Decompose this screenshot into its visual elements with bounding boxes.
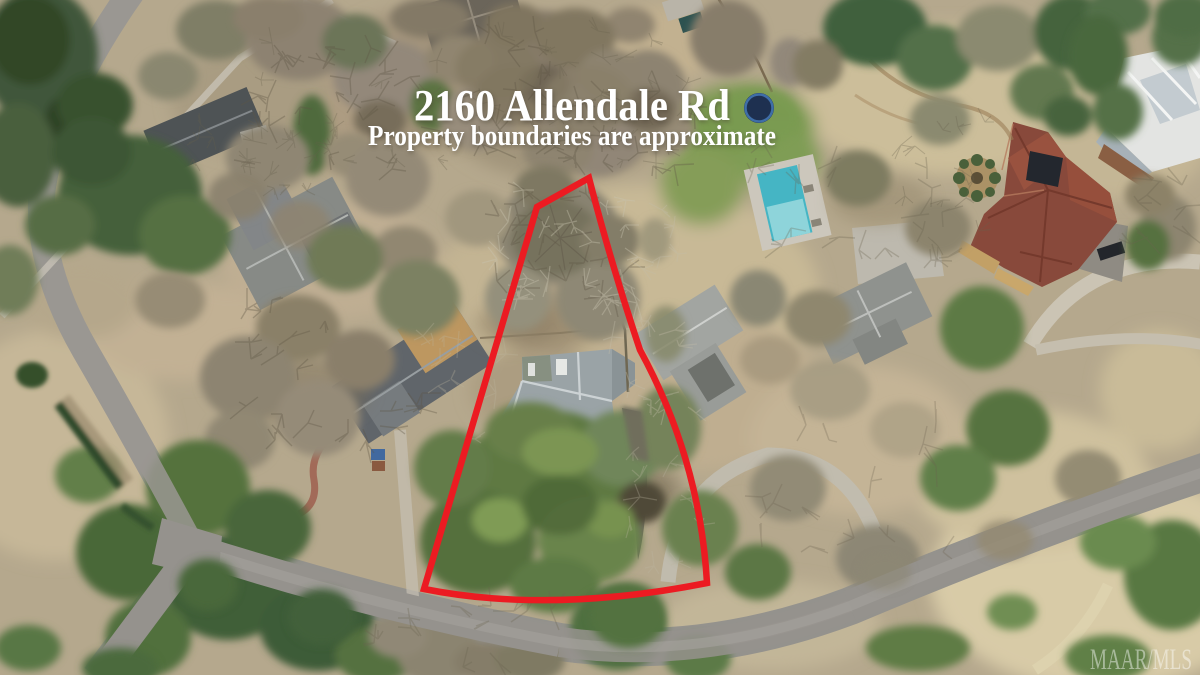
svg-text:MAAR/MLS: MAAR/MLS [1090, 643, 1192, 675]
svg-text:Property boundaries are approx: Property boundaries are approximate [368, 121, 776, 152]
